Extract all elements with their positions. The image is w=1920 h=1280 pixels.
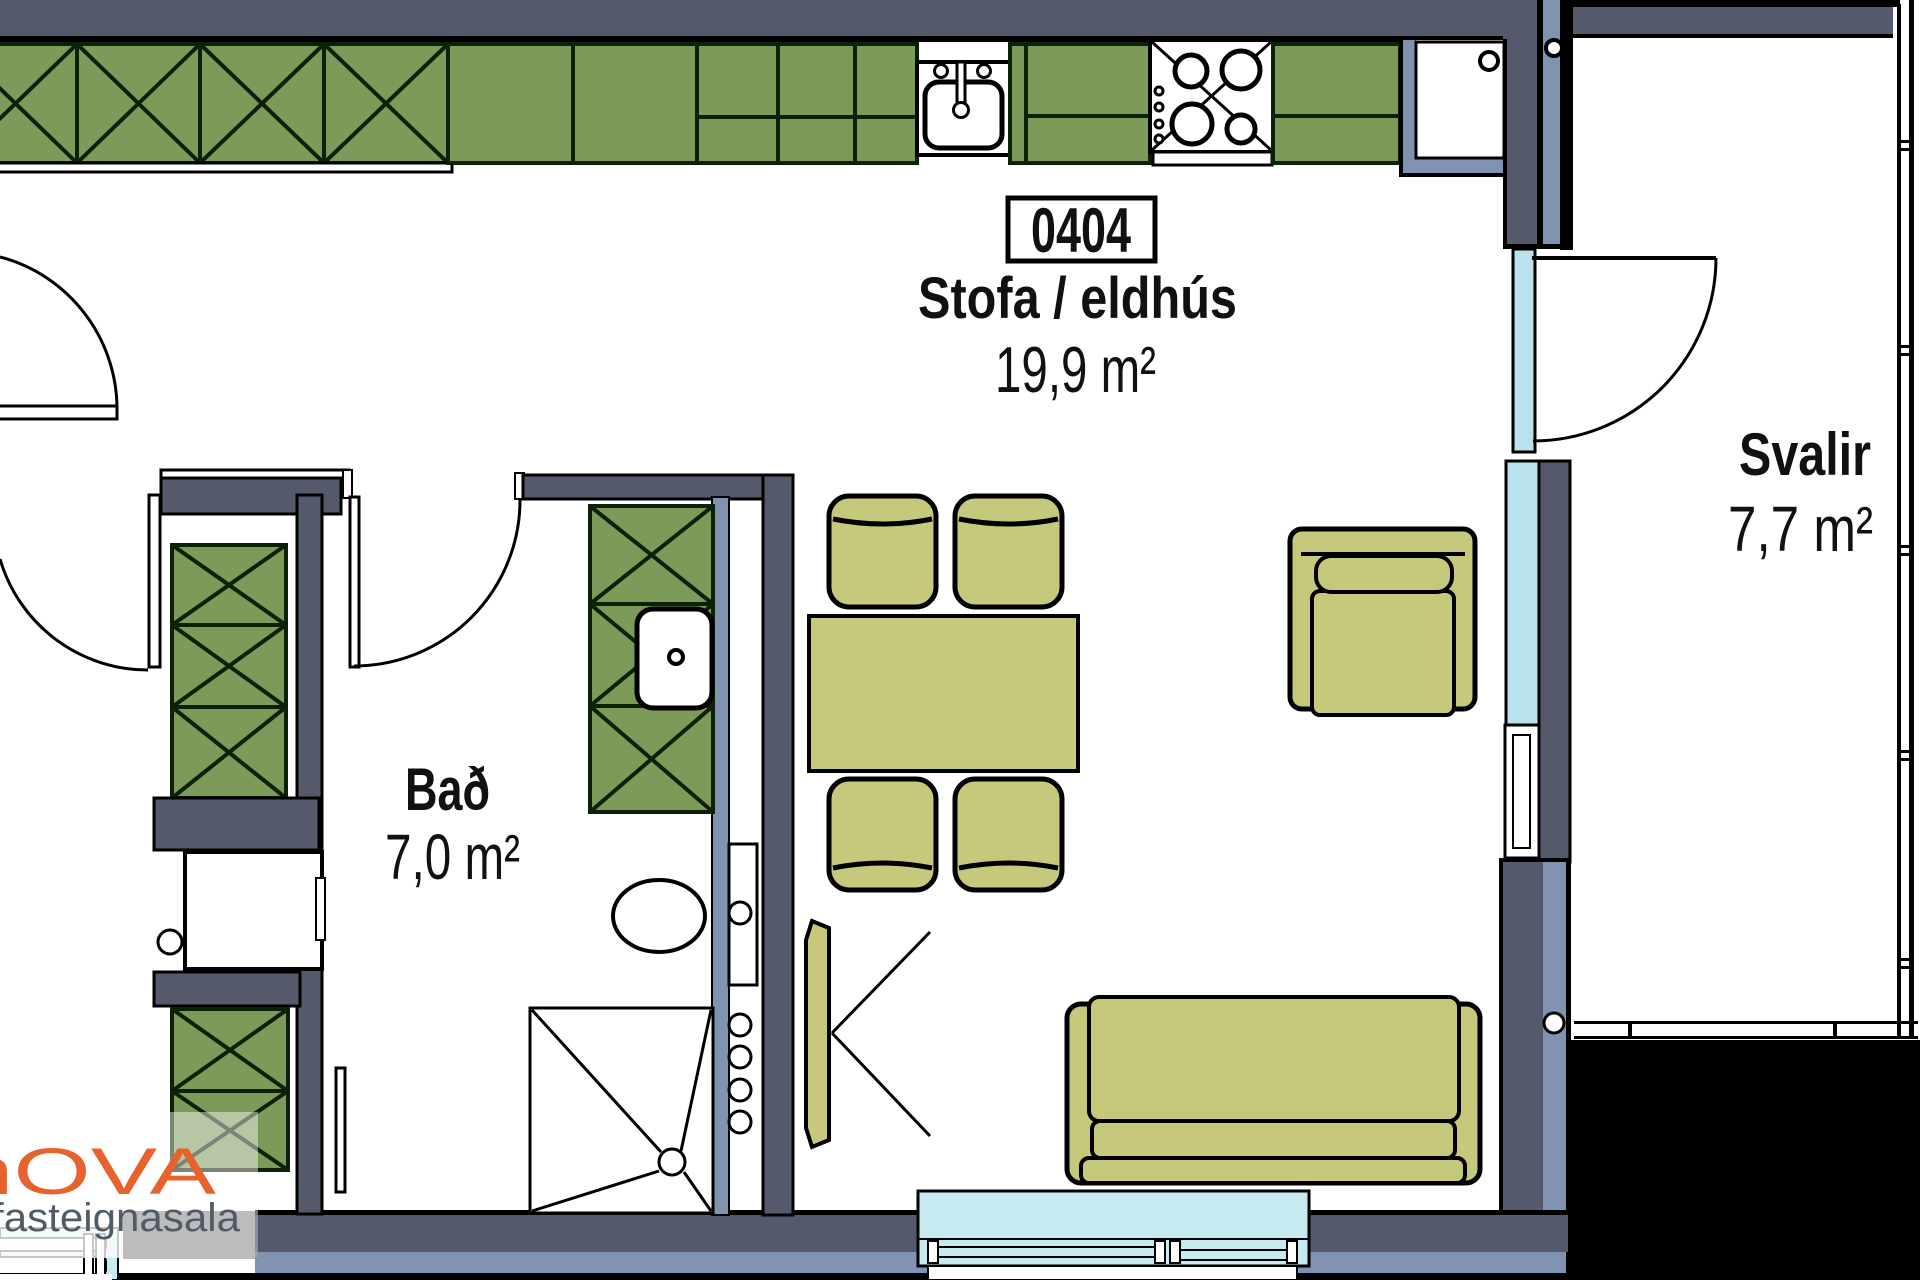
svg-text:7,0 m²: 7,0 m² [385,821,520,893]
svg-text:fasteignasala: fasteignasala [0,1196,241,1240]
svg-text:Svalir: Svalir [1739,421,1871,488]
svg-text:19,9 m²: 19,9 m² [995,333,1156,406]
svg-text:Bað: Bað [405,756,490,823]
svg-text:Stofa / eldhús: Stofa / eldhús [918,266,1237,331]
svg-text:7,7 m²: 7,7 m² [1728,493,1873,565]
svg-text:0404: 0404 [1031,196,1131,266]
